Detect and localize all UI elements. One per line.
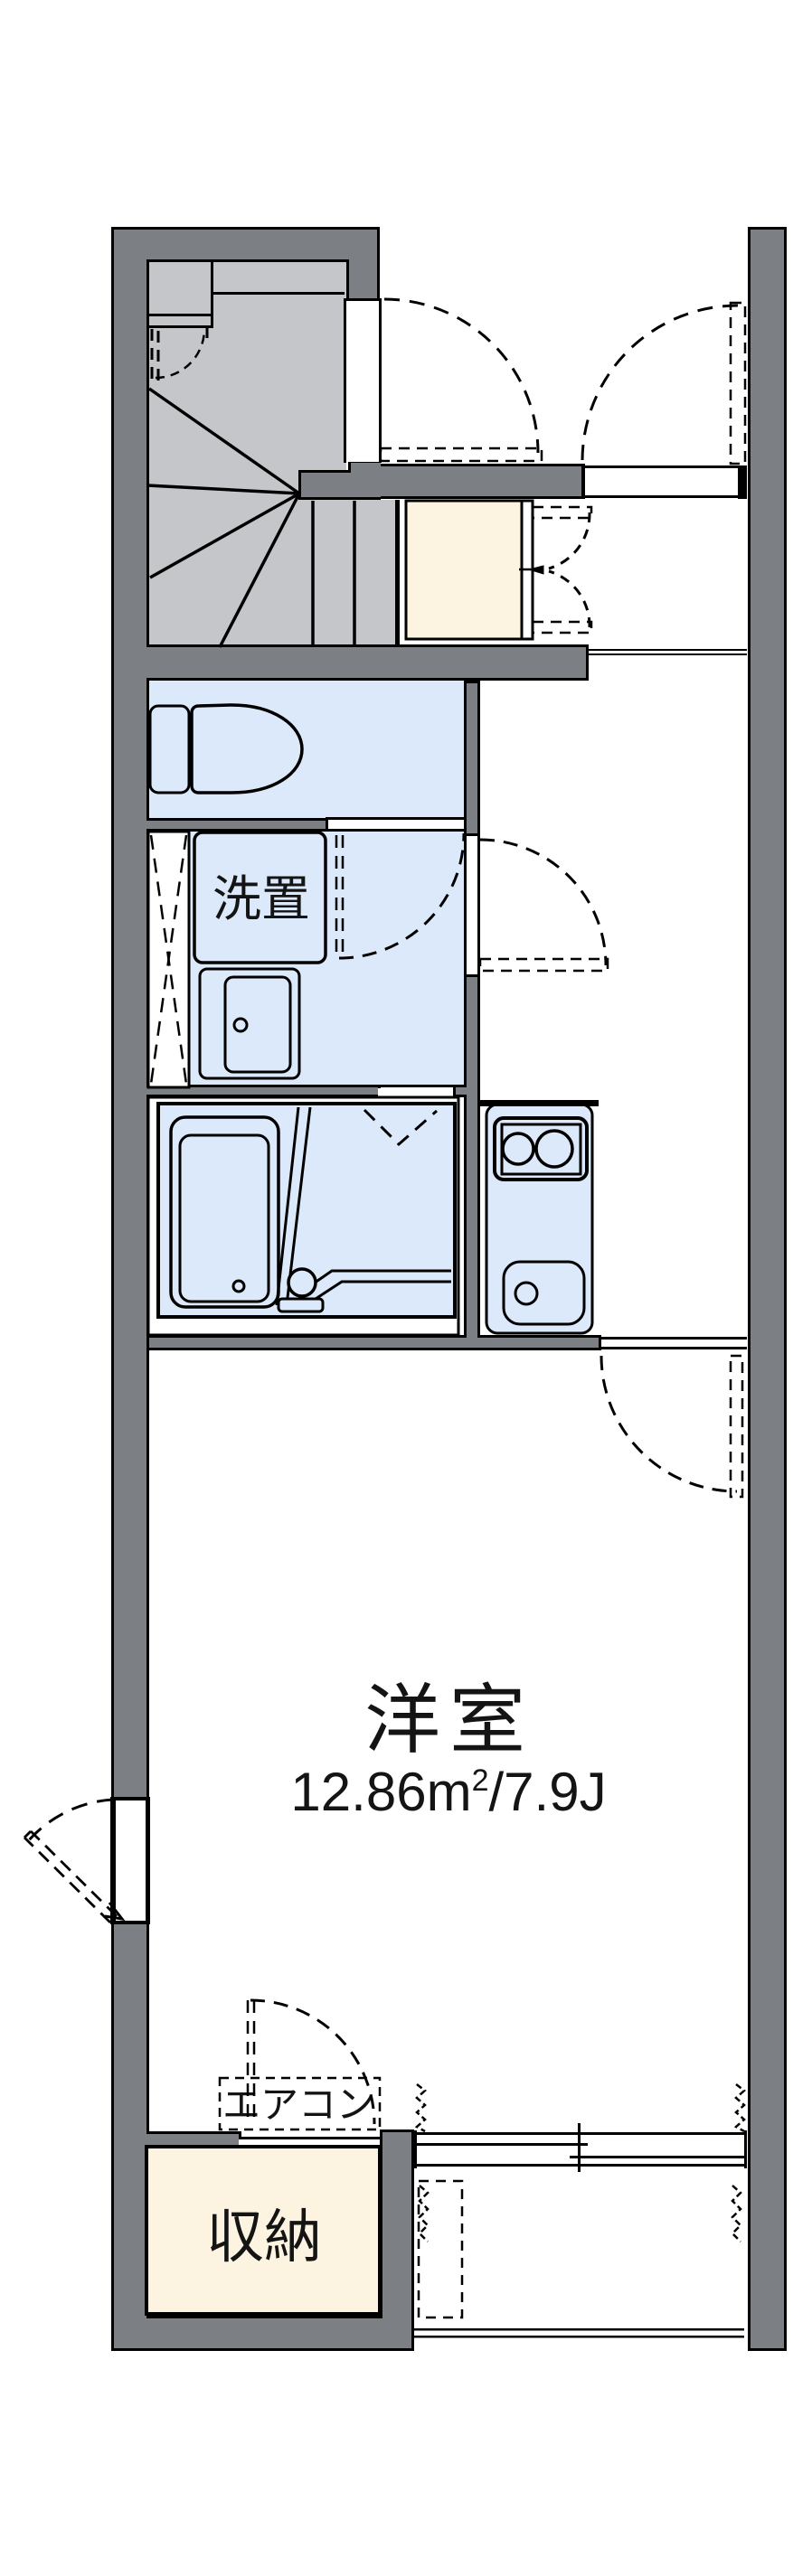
svg-text:洋室: 洋室 xyxy=(364,1678,534,1763)
svg-text:12.86m2/7.9J: 12.86m2/7.9J xyxy=(290,1762,606,1822)
svg-text:洗置: 洗置 xyxy=(212,872,310,926)
svg-text:エアコン: エアコン xyxy=(222,2083,374,2126)
svg-text:収納: 収納 xyxy=(206,2205,322,2270)
